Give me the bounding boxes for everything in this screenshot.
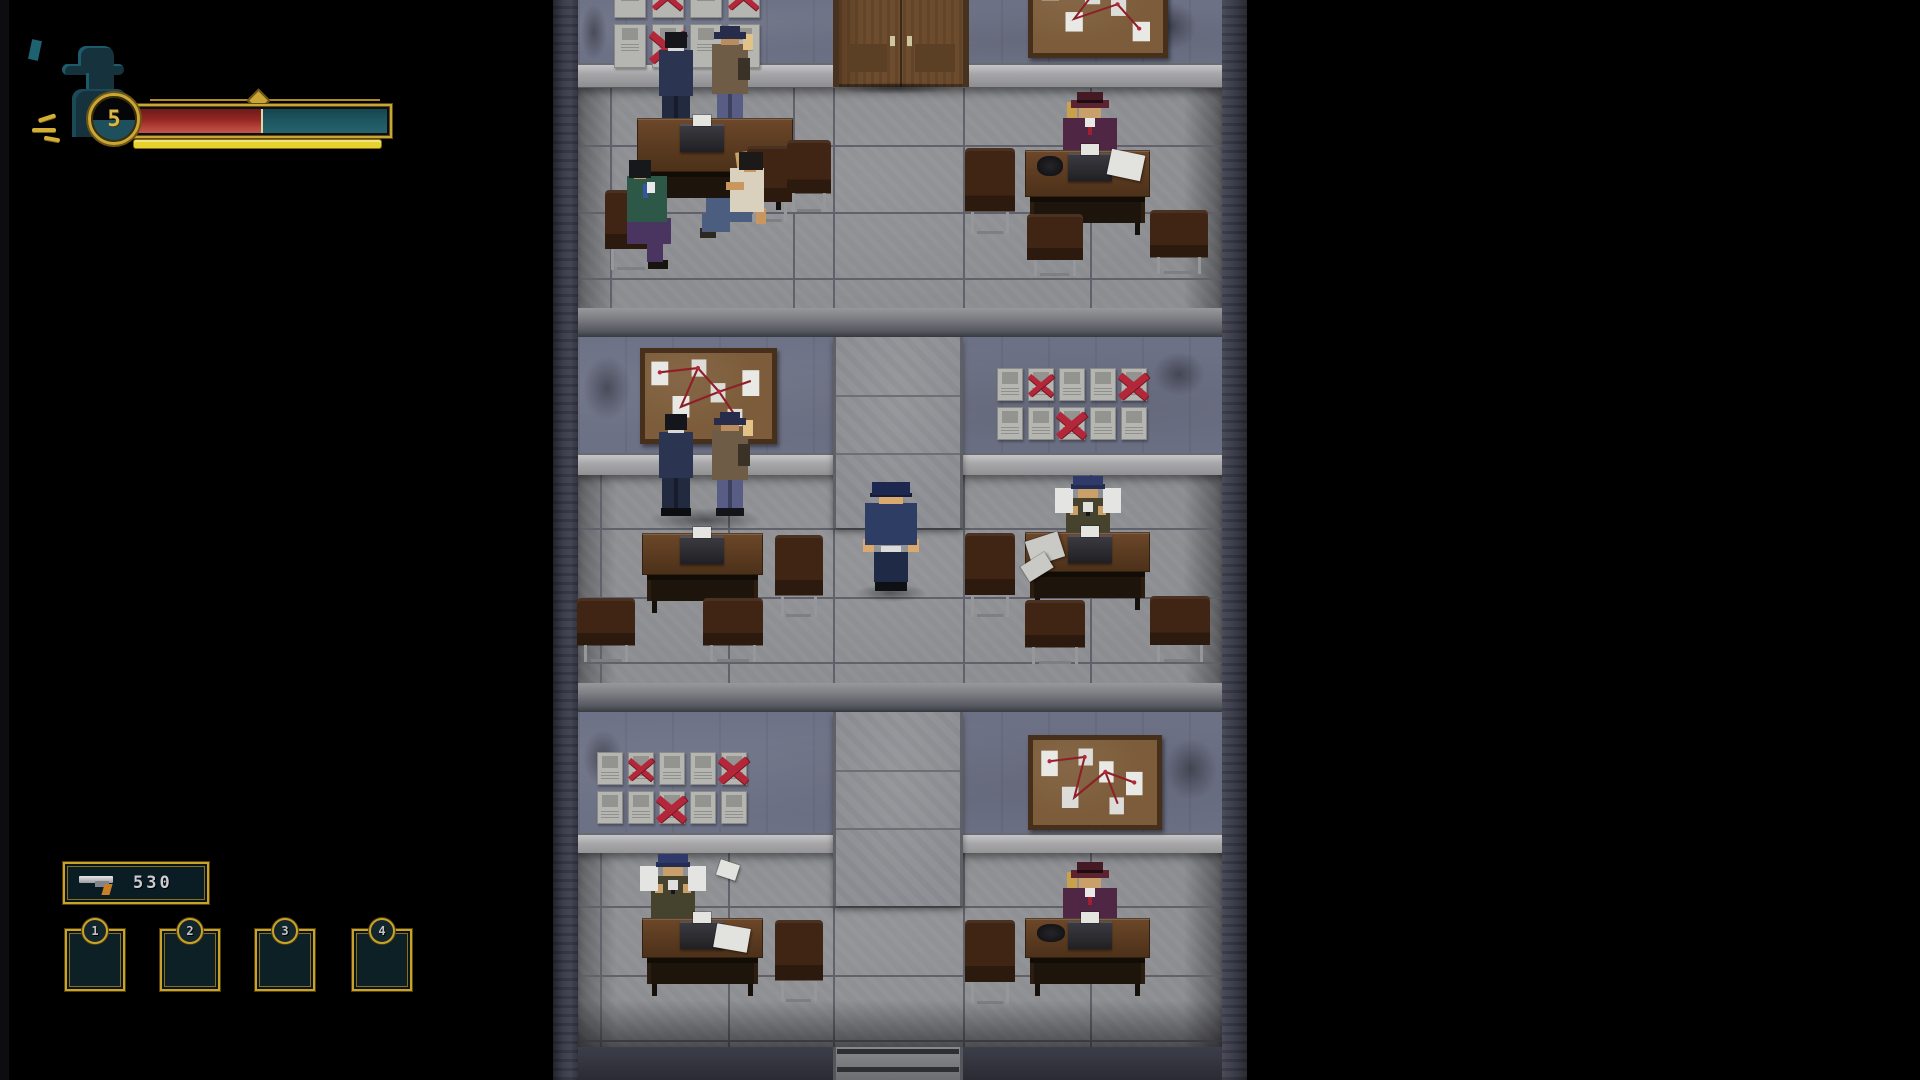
- evidence-board[interactable]: [1028, 735, 1162, 830]
- chair: [965, 533, 1015, 617]
- chair: [775, 920, 823, 1002]
- level-number: 5: [107, 107, 120, 132]
- chair: [775, 535, 823, 617]
- wanted-poster-wall[interactable]: [997, 368, 1147, 440]
- wanted-poster-crossed: [728, 0, 760, 18]
- police-station-building: [553, 0, 1247, 1080]
- slot-hotkey: 4: [378, 924, 385, 938]
- wanted-poster-wall[interactable]: [597, 752, 747, 824]
- game-screen: 5 530 1 2 3 4: [0, 0, 1920, 1080]
- typewriter: [680, 536, 724, 564]
- wanted-poster: [997, 407, 1023, 440]
- pistol-grip: [101, 884, 112, 895]
- black-hat-on-desk: [1037, 924, 1065, 942]
- wanted-poster: [1090, 407, 1116, 440]
- wanted-poster: [614, 0, 646, 18]
- player-character-officer[interactable]: [863, 482, 919, 594]
- screen-left-edge: [0, 0, 9, 1080]
- building-outer-wall-right: [1222, 0, 1247, 1080]
- wanted-poster-crossed: [1059, 407, 1085, 440]
- slot-hotkey: 3: [281, 924, 288, 938]
- wanted-poster: [1090, 368, 1116, 401]
- evidence-notes: [1033, 0, 1163, 53]
- chair: [787, 140, 831, 212]
- energy-underline-bar: [133, 139, 382, 149]
- slot-hotkey-badge: 1: [82, 918, 108, 944]
- slot-hotkey-badge: 4: [369, 918, 395, 944]
- desk-telephone: [1037, 156, 1063, 176]
- floor3-shadow-fade: [578, 1000, 1222, 1047]
- wanted-poster: [997, 368, 1023, 401]
- npc-detective-trenchcoat[interactable]: [705, 412, 755, 518]
- wanted-poster-crossed: [659, 791, 685, 824]
- floor-slab: [578, 683, 1222, 714]
- building-outer-wall-left: [553, 0, 578, 1080]
- npc-seated-green-suit[interactable]: [617, 160, 687, 272]
- wall-stain: [583, 356, 631, 420]
- shadow: [833, 82, 957, 94]
- gold-sparkle: [38, 113, 56, 122]
- portrait-scarf: [28, 39, 42, 61]
- floor-slab: [578, 308, 1222, 339]
- health-bar-fill: [135, 109, 263, 133]
- wall-stain: [1165, 738, 1217, 800]
- slot-hotkey: 2: [186, 924, 193, 938]
- inventory-slot-2[interactable]: 2: [160, 929, 220, 991]
- wanted-poster: [1028, 407, 1054, 440]
- wall-stain: [581, 4, 607, 60]
- wanted-poster: [690, 0, 722, 18]
- wooden-double-door[interactable]: [833, 0, 969, 87]
- wanted-poster: [659, 752, 685, 785]
- wanted-poster: [1121, 407, 1147, 440]
- typewriter: [1068, 535, 1112, 563]
- npc-detective-trenchcoat[interactable]: [705, 26, 755, 132]
- wanted-poster: [628, 791, 654, 824]
- wanted-poster: [690, 752, 716, 785]
- chair: [703, 598, 763, 662]
- health-bar: [130, 104, 392, 138]
- evidence-board[interactable]: [1028, 0, 1168, 58]
- slot-hotkey-badge: 3: [272, 918, 298, 944]
- ammo-count: 530: [133, 873, 173, 893]
- gold-sparkle: [44, 136, 60, 143]
- pistol-icon: [79, 872, 119, 894]
- slot-hotkey: 1: [91, 924, 98, 938]
- typewriter: [1068, 153, 1112, 181]
- chair: [1150, 596, 1210, 662]
- chair: [1025, 600, 1085, 664]
- wall-stain: [1153, 352, 1205, 396]
- weapon-ammo-panel[interactable]: 530: [63, 862, 209, 904]
- wanted-poster: [614, 24, 646, 68]
- wanted-poster-crossed: [1121, 368, 1147, 401]
- inventory-slot-1[interactable]: 1: [65, 929, 125, 991]
- wanted-poster: [597, 791, 623, 824]
- health-bar-track: [135, 109, 387, 133]
- inventory-slot-3[interactable]: 3: [255, 929, 315, 991]
- npc-detective-sorting-papers[interactable]: [640, 854, 706, 918]
- npc-detective-navy[interactable]: [652, 414, 700, 518]
- chair: [965, 148, 1015, 234]
- chair: [965, 920, 1015, 1004]
- wanted-poster-crossed: [652, 0, 684, 18]
- wanted-poster-crossed: [721, 752, 747, 785]
- corridor-pillar: [833, 712, 963, 906]
- portrait-hat: [78, 46, 114, 66]
- wanted-poster: [1059, 368, 1085, 401]
- wanted-poster-crossed: [628, 752, 654, 785]
- chair: [1150, 210, 1208, 274]
- gold-sparkle: [32, 128, 56, 132]
- inventory-slot-4[interactable]: 4: [352, 929, 412, 991]
- typewriter: [1068, 921, 1112, 949]
- wanted-poster: [690, 791, 716, 824]
- chair: [577, 598, 635, 662]
- building-bottom-band: [578, 1047, 1222, 1080]
- slot-hotkey-badge: 2: [177, 918, 203, 944]
- evidence-notes: [1033, 740, 1157, 825]
- wanted-poster: [597, 752, 623, 785]
- chair: [1027, 214, 1083, 276]
- wanted-poster: [721, 791, 747, 824]
- typewriter: [680, 124, 724, 152]
- stairwell-corridor: [833, 1047, 963, 1080]
- level-badge: 5: [88, 93, 140, 145]
- npc-seated-tan-shirt[interactable]: [700, 152, 780, 256]
- wanted-poster-crossed: [1028, 368, 1054, 401]
